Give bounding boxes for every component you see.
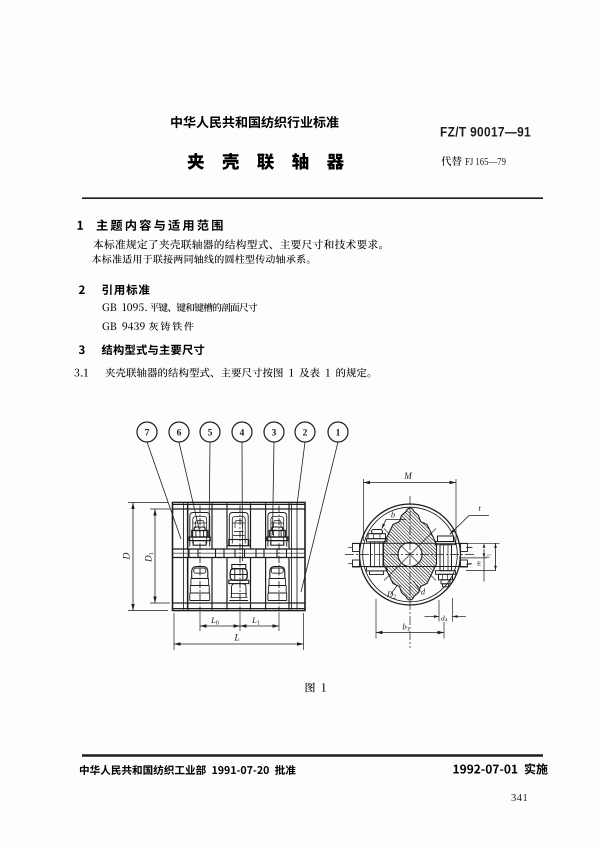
svg-text:L0: L0 [210,615,219,627]
svg-text:6: 6 [177,429,182,439]
svg-text:d: d [421,587,426,597]
svg-text:341: 341 [511,793,528,804]
svg-text:L1: L1 [251,615,260,627]
svg-text:D1: D1 [144,552,156,563]
svg-text:4: 4 [240,429,245,439]
svg-text:M: M [403,471,412,481]
svg-text:7: 7 [145,429,150,439]
svg-text:t1: t1 [485,553,493,558]
svg-text:t: t [478,503,481,513]
svg-text:2: 2 [303,429,308,439]
svg-text:m: m [476,561,483,566]
svg-text:FZ/T 90017—91: FZ/T 90017—91 [440,125,531,141]
svg-text:d4: d4 [441,614,448,624]
svg-text:FJ 165—79: FJ 165—79 [465,157,506,168]
svg-text:3: 3 [272,429,277,439]
svg-text:L: L [233,634,239,644]
svg-text:D2: D2 [386,589,396,601]
svg-text:5: 5 [208,429,213,439]
svg-text:1: 1 [336,429,341,439]
svg-text:D: D [123,552,133,560]
svg-text:b1: b1 [402,622,409,634]
svg-text:b: b [391,510,395,520]
